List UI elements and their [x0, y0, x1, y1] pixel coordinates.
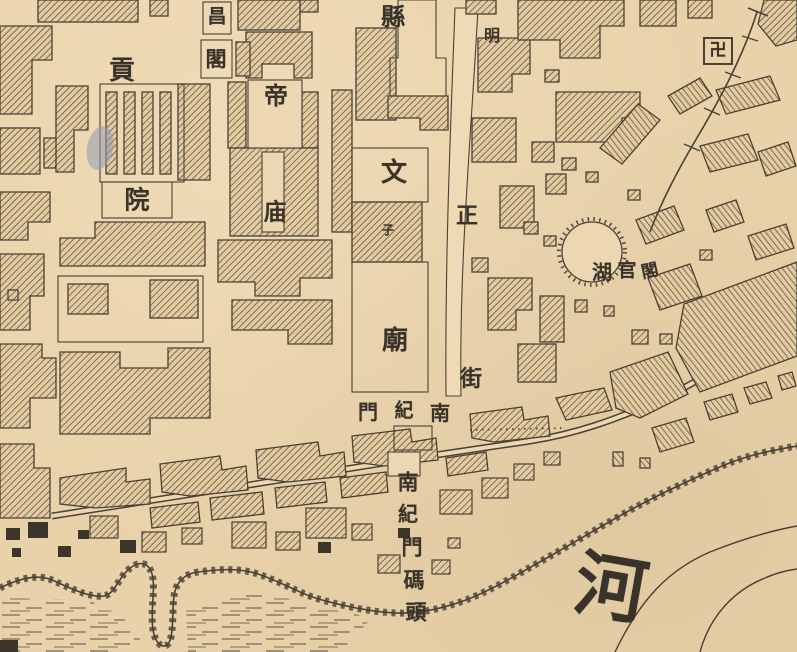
- building: [440, 490, 472, 514]
- building: [56, 86, 88, 172]
- wenmiao-north-court: [352, 148, 428, 202]
- building: [300, 0, 318, 12]
- building: [60, 222, 205, 266]
- building: [706, 200, 744, 232]
- building: [472, 258, 488, 272]
- building: [150, 502, 200, 528]
- building: [758, 142, 796, 176]
- building: [640, 0, 676, 26]
- building: [142, 532, 166, 552]
- building: [545, 70, 559, 82]
- building: [700, 134, 758, 172]
- building: [540, 296, 564, 342]
- yuan-hall-outline: [102, 182, 172, 218]
- building: [228, 82, 246, 148]
- building: [276, 532, 300, 550]
- exam-cell-row: [142, 92, 153, 174]
- building: [610, 352, 688, 418]
- building: [8, 290, 18, 300]
- building: [613, 452, 623, 466]
- swastika-temple-box: [704, 38, 732, 64]
- building: [12, 548, 21, 557]
- building: [518, 0, 624, 58]
- building: [470, 407, 550, 442]
- building: [604, 306, 614, 316]
- building: [90, 516, 118, 538]
- building: [556, 388, 612, 420]
- scan-edge-mark: [0, 640, 18, 652]
- building: [246, 32, 312, 78]
- building: [628, 190, 640, 200]
- building: [532, 142, 554, 162]
- building: [0, 192, 50, 240]
- map-canvas: [0, 0, 797, 652]
- historical-chinese-city-map: 貢院昌閣帝庙縣明文子廟正街門紀南湖官閣南紀門碼頭河卍: [0, 0, 797, 652]
- nanjimen-gate: [388, 452, 420, 476]
- building: [352, 524, 372, 540]
- building: [232, 522, 266, 548]
- building: [178, 84, 210, 180]
- building: [716, 76, 780, 114]
- building: [182, 528, 202, 544]
- building: [0, 26, 52, 114]
- building: [660, 334, 672, 344]
- building: [68, 284, 108, 314]
- building: [586, 172, 598, 182]
- building: [28, 522, 48, 538]
- building: [120, 540, 136, 553]
- building: [688, 0, 712, 18]
- building: [60, 348, 210, 434]
- building: [340, 472, 388, 498]
- wenchangge-box-1: [203, 2, 231, 34]
- water-lines-area: [0, 590, 372, 652]
- building: [744, 382, 772, 404]
- building: [575, 300, 587, 312]
- building: [704, 394, 738, 420]
- building: [232, 300, 332, 344]
- lake-circle: [559, 219, 625, 285]
- building: [0, 128, 40, 174]
- building: [388, 96, 448, 130]
- building: [238, 0, 300, 30]
- building: [544, 236, 556, 246]
- building: [306, 508, 346, 538]
- building: [478, 38, 530, 92]
- building: [514, 464, 534, 480]
- exam-cell-row: [160, 92, 171, 174]
- north-south-street: [446, 8, 478, 396]
- exam-cell-row: [124, 92, 135, 174]
- wenmiao-south-court: [352, 262, 428, 392]
- building: [6, 528, 20, 540]
- building: [398, 528, 410, 538]
- building: [150, 0, 168, 16]
- building: [544, 452, 560, 465]
- building: [652, 418, 694, 452]
- building: [524, 222, 538, 234]
- building: [352, 202, 422, 262]
- building: [482, 478, 508, 498]
- dimiao-corridor: [248, 80, 302, 148]
- building: [78, 530, 89, 539]
- building: [758, 0, 797, 46]
- building: [562, 158, 576, 170]
- building: [256, 442, 346, 482]
- building: [0, 444, 50, 518]
- building: [432, 560, 450, 574]
- wenchangge-box-2: [201, 40, 232, 78]
- xian-tower-outline: [390, 0, 446, 96]
- building: [332, 90, 352, 232]
- building: [632, 330, 648, 344]
- building: [302, 92, 318, 148]
- building: [378, 555, 400, 573]
- building: [748, 224, 794, 260]
- building: [518, 344, 556, 382]
- building: [700, 250, 712, 260]
- river-bank-lines: [615, 526, 797, 652]
- building: [160, 456, 248, 496]
- building: [318, 542, 331, 553]
- building: [546, 174, 566, 194]
- building: [448, 538, 460, 548]
- building: [58, 546, 71, 557]
- building: [488, 278, 532, 330]
- building: [210, 492, 264, 520]
- building: [0, 254, 44, 330]
- building: [236, 42, 250, 76]
- building: [778, 372, 796, 390]
- building: [275, 482, 327, 508]
- ticked-trail: [650, 8, 768, 232]
- building: [150, 280, 198, 318]
- building: [60, 468, 150, 508]
- building: [472, 118, 516, 162]
- building: [640, 458, 650, 468]
- building: [636, 206, 684, 244]
- building: [466, 0, 496, 14]
- building: [38, 0, 138, 22]
- dimiao-slot: [262, 152, 284, 232]
- building: [218, 240, 332, 296]
- building: [0, 344, 56, 428]
